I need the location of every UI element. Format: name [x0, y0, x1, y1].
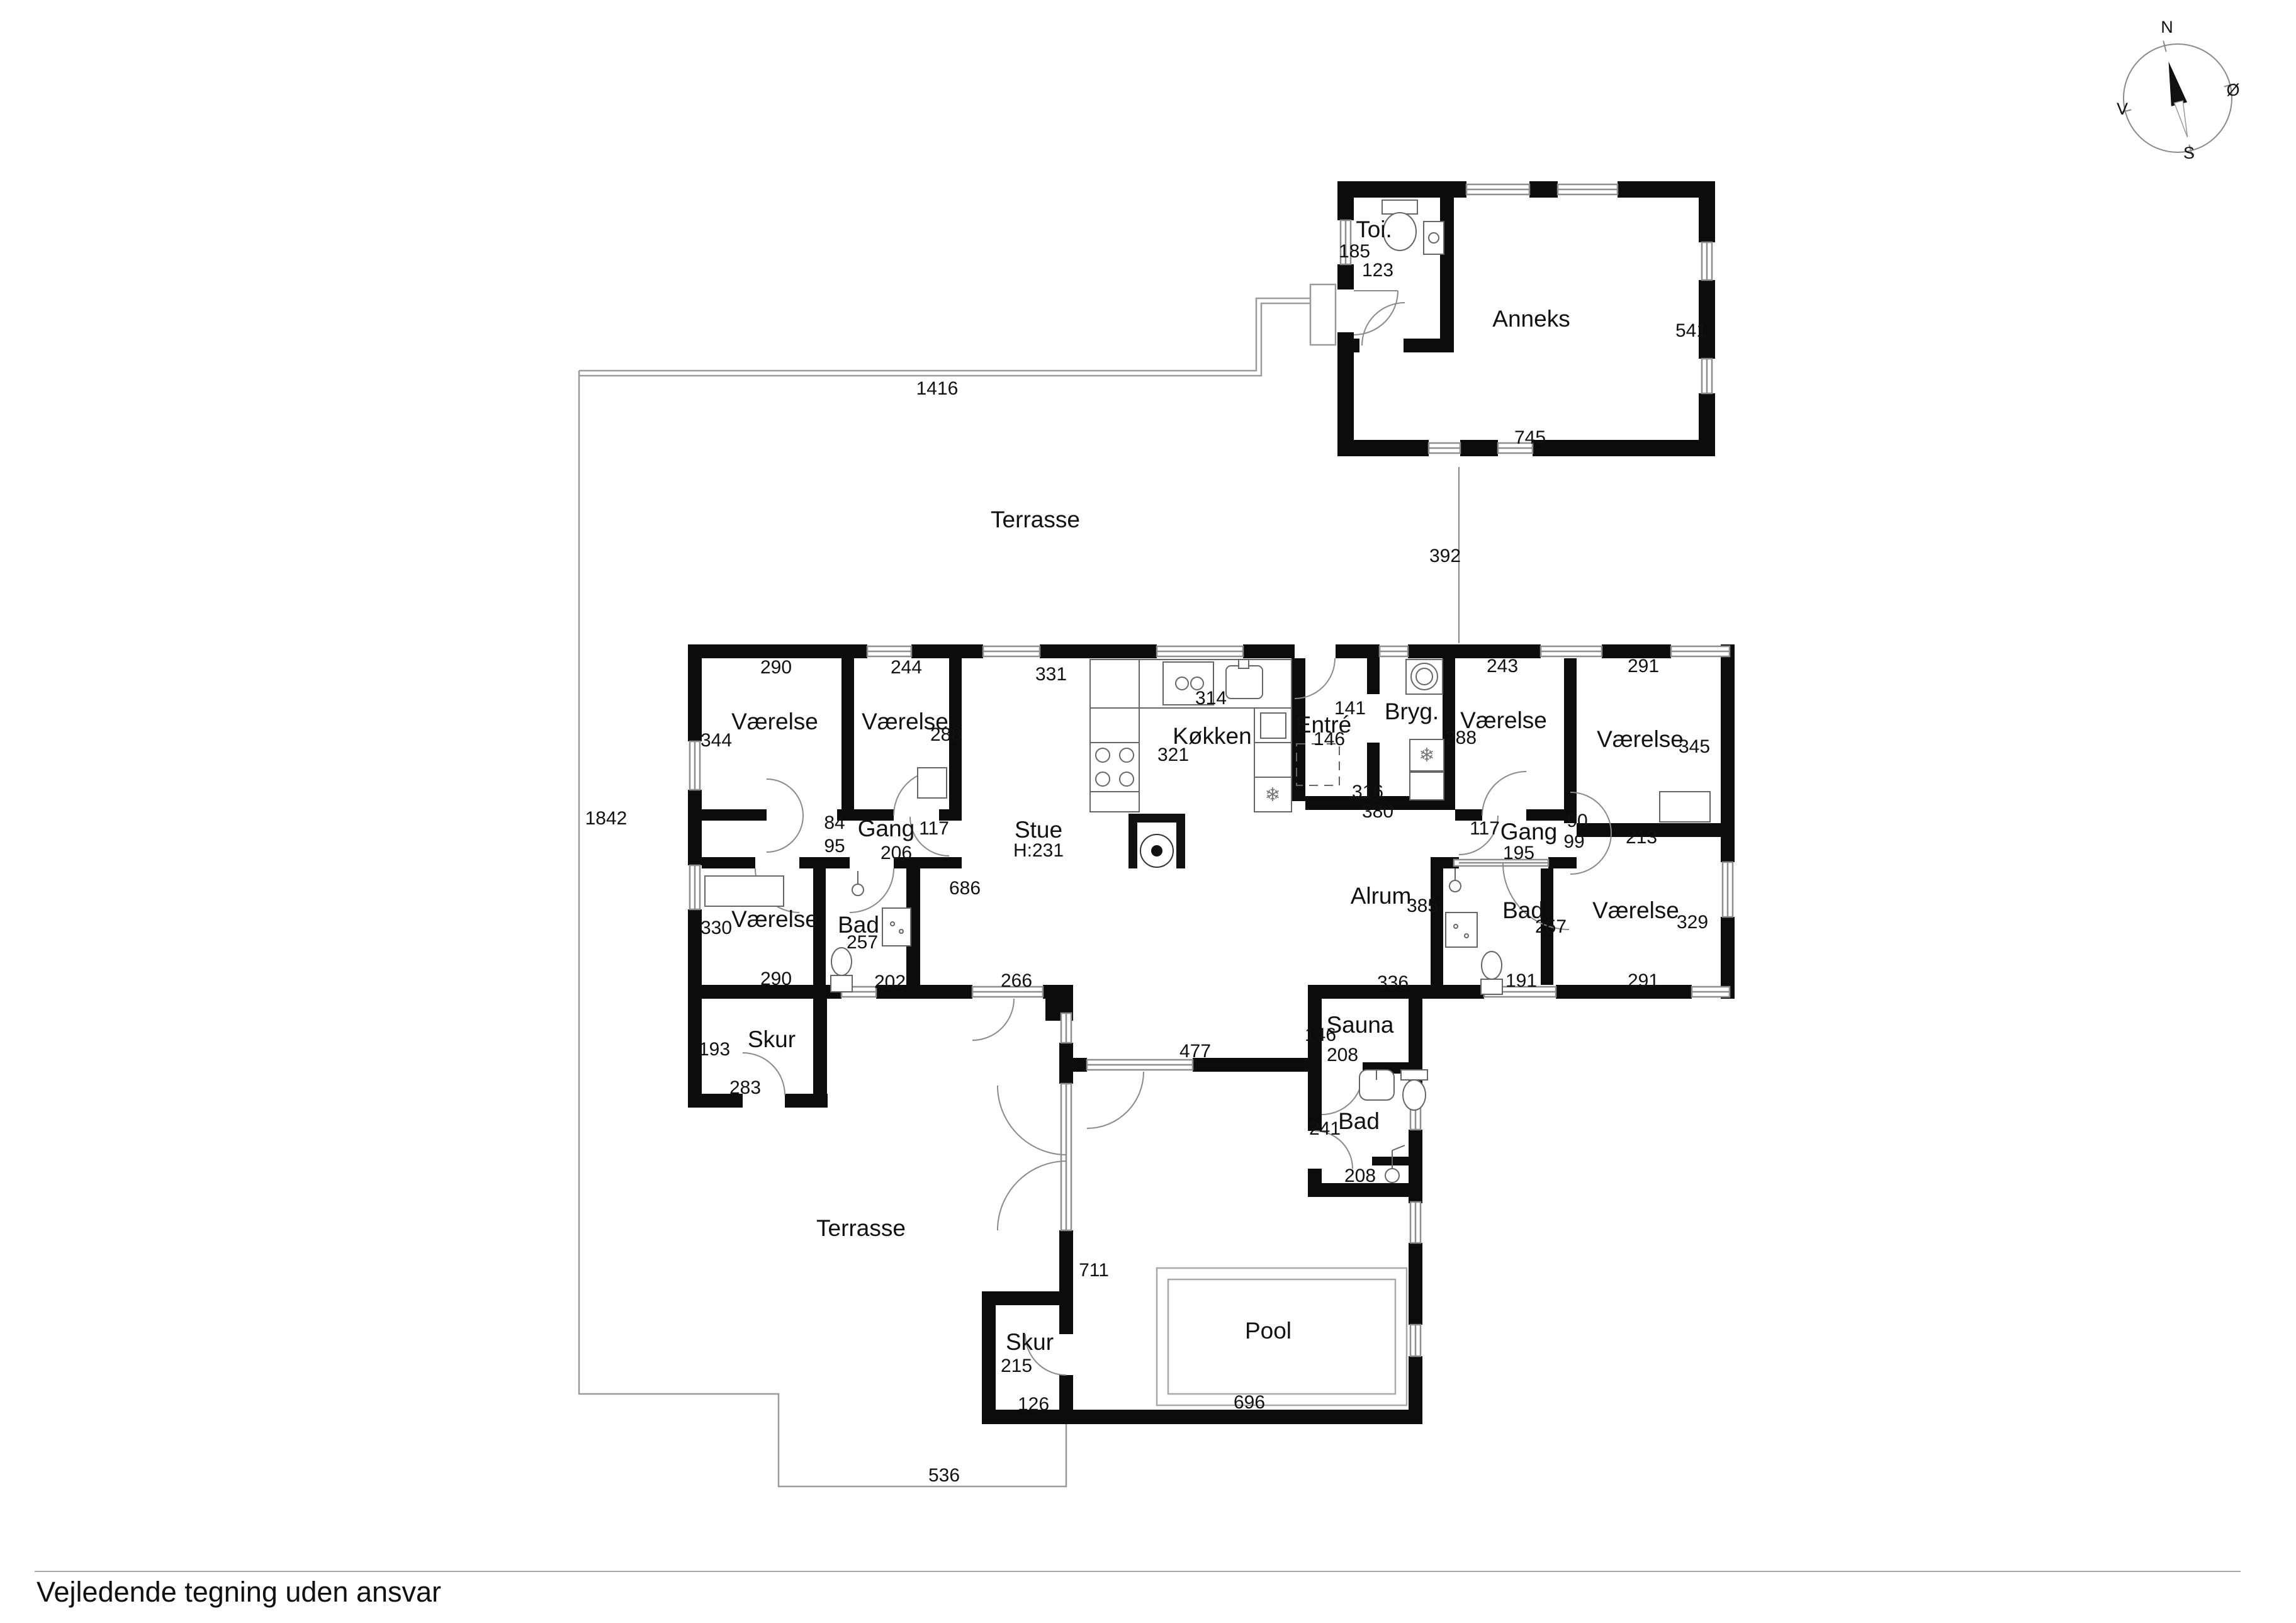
- sink-icon: [1424, 222, 1444, 254]
- fridge-icon: [1254, 708, 1291, 743]
- wardrobe: [918, 768, 947, 798]
- toilet-icon: [1481, 952, 1502, 994]
- footer-divider: [35, 1571, 2241, 1572]
- pool: [1157, 1268, 1407, 1405]
- toilet-icon: [1401, 1070, 1427, 1110]
- footer-disclaimer: Vejledende tegning uden ansvar: [37, 1576, 441, 1609]
- toilet-icon: [1382, 200, 1417, 250]
- compass-west-label: V: [2117, 99, 2128, 118]
- compass-icon: N Ø S V: [2106, 18, 2249, 170]
- toilet-icon: [831, 948, 852, 992]
- compass-east-label: Ø: [2226, 81, 2239, 99]
- washing-machine-icon: [1406, 660, 1443, 694]
- wardrobe: [705, 876, 784, 906]
- sink-tap-icon: [852, 871, 864, 896]
- shower-icon: [1446, 913, 1477, 947]
- svg-text:❄: ❄: [1419, 745, 1434, 766]
- kitchen-sink-icon: [1226, 660, 1263, 699]
- fixtures: ❄ ❄: [705, 200, 1710, 1182]
- shower-icon: [882, 908, 911, 946]
- freezer-icon: ❄: [1410, 739, 1444, 771]
- floorplan-page: ❄ ❄: [0, 0, 2296, 1623]
- walls: [688, 181, 1735, 1424]
- dishwasher-icon: [1163, 662, 1213, 705]
- sink-tap-icon: [1449, 868, 1461, 892]
- compass-north-label: N: [2161, 18, 2173, 37]
- stove-icon: [1090, 743, 1139, 792]
- freezer-icon: ❄: [1254, 777, 1291, 812]
- sink-icon: [1359, 1070, 1394, 1100]
- svg-text:❄: ❄: [1264, 785, 1280, 806]
- floorplan-drawing: ❄ ❄: [0, 0, 2296, 1623]
- fireplace-icon: [1128, 814, 1185, 868]
- compass-south-label: S: [2183, 143, 2195, 162]
- wardrobe: [1660, 792, 1710, 822]
